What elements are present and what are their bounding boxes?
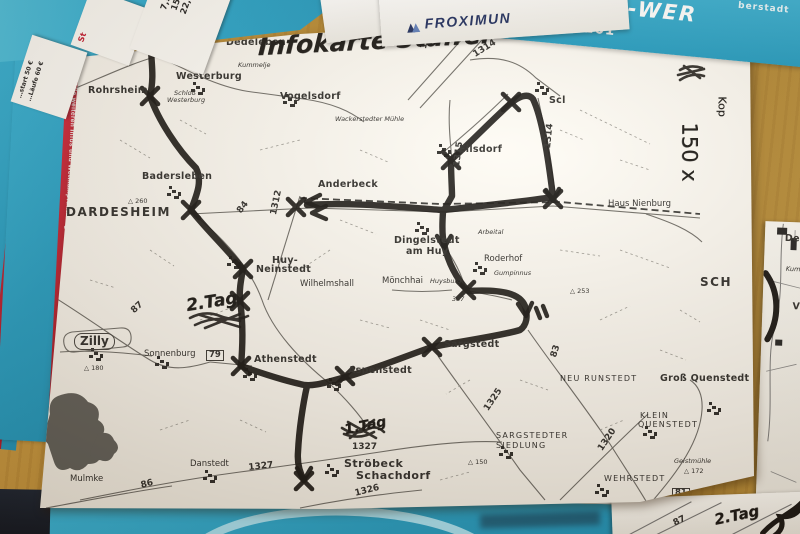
map-label: Rohrsheim	[88, 86, 148, 96]
main-map-sheet: DedelebenKummelje78WesterburgRohrsheimSc…	[0, 0, 800, 534]
map-label: Haus Nienburg	[608, 200, 671, 209]
map-label: Anderbeck	[318, 180, 378, 190]
map-label: Westerburg	[167, 97, 205, 104]
forest-area	[43, 393, 118, 470]
map-linework	[0, 0, 800, 534]
map-label: SIEDLUNG	[496, 442, 546, 450]
map-label: Wackerstedter Mühle	[335, 116, 404, 123]
map-label: Ströbeck	[344, 458, 403, 469]
map-label: 1327	[352, 443, 377, 452]
map-label: SCH	[700, 276, 732, 288]
map-label: Gumpinnus	[494, 270, 531, 277]
map-label: am Huy	[406, 247, 448, 257]
map-label: DARDESHEIM	[66, 206, 171, 218]
map-label: Scl	[549, 96, 566, 106]
froximun-logo-icon	[406, 16, 423, 37]
map-label: Wilhelmshall	[300, 280, 354, 289]
map-label: Sonnenburg	[144, 350, 196, 359]
map-label: △ 253	[570, 288, 589, 295]
map-label: Athenstedt	[254, 355, 317, 365]
map-label: 79	[206, 350, 224, 361]
handwritten-copy-count: 150 x	[678, 122, 702, 181]
map-label: Roderhof	[484, 255, 522, 264]
map-label: Mönchhai	[382, 277, 423, 286]
map-label: Groß Quenstedt	[660, 374, 749, 384]
map-label: KLEIN	[640, 412, 669, 420]
main-map-sheet-wrap: DedelebenKummelje78WesterburgRohrsheimSc…	[0, 0, 800, 534]
map-label: Kummelje	[238, 62, 270, 69]
map-label: △ 180	[84, 365, 103, 372]
map-label: 81	[672, 488, 690, 499]
map-label: Eilsdorf	[459, 145, 502, 155]
map-label: △ 172	[684, 468, 703, 475]
map-label: Sargstedt	[444, 340, 499, 350]
map-label: Mulmke	[70, 475, 103, 484]
map-label: QUENSTEDT	[638, 421, 698, 429]
map-label: △ 150	[468, 459, 487, 466]
map-label: Schachdorf	[356, 470, 431, 481]
banner-corner-text: berstadt	[738, 1, 790, 16]
map-label: Westerburg	[176, 72, 242, 82]
map-label: Zilly	[74, 333, 115, 350]
map-label: Aspenstedt	[348, 366, 412, 376]
map-label: NEU RUNSTEDT	[560, 375, 637, 383]
map-label: Geistmühle	[674, 458, 711, 465]
map-label: Arbeital	[478, 229, 503, 236]
map-label: Huysburg	[430, 278, 461, 285]
photo-of-desk: Dedel Kummel Vogel 87 2.Tag Alle weitere…	[0, 0, 800, 534]
map-label: Vogelsdorf	[280, 92, 341, 102]
map-label: Dingelstedt	[394, 236, 460, 246]
map-label: Neinstedt	[256, 265, 311, 275]
map-label: 387	[452, 296, 464, 303]
map-label: WEHRSTEDT	[604, 475, 665, 483]
map-label: △ 260	[128, 198, 147, 205]
map-label: Danstedt	[190, 460, 229, 469]
map-label: SARGSTEDTER	[496, 432, 568, 440]
map-label: Badersleben	[142, 172, 212, 182]
froximun-wordmark: FROXIMUN	[424, 10, 512, 32]
handwritten-kop-note: Kop	[716, 96, 729, 116]
